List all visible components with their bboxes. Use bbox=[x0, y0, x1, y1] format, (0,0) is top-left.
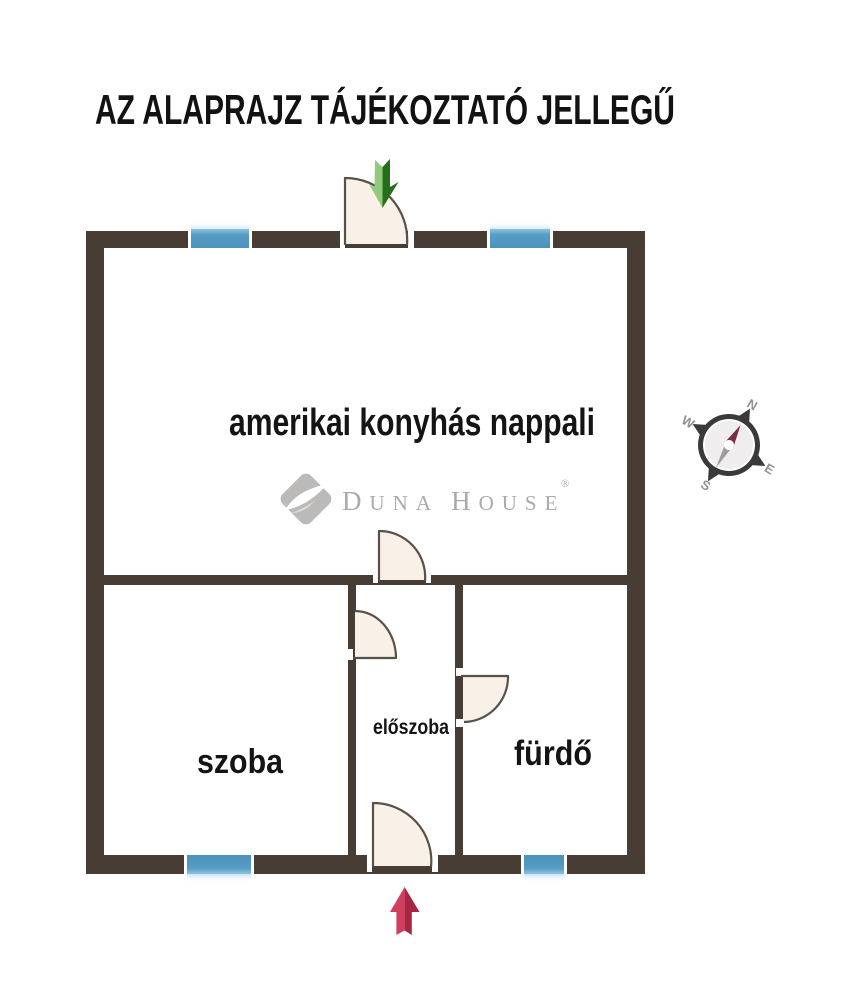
svg-text:®: ® bbox=[561, 478, 569, 490]
svg-text:AZ ALAPRAJZ TÁJÉKOZTATÓ JELLEG: AZ ALAPRAJZ TÁJÉKOZTATÓ JELLEGŰ bbox=[95, 85, 675, 133]
svg-text:amerikai konyhás nappali: amerikai konyhás nappali bbox=[229, 402, 595, 444]
svg-text:előszoba: előszoba bbox=[373, 716, 449, 739]
svg-text:fürdő: fürdő bbox=[514, 734, 592, 773]
svg-text:E: E bbox=[762, 460, 777, 477]
svg-text:szoba: szoba bbox=[197, 743, 284, 781]
svg-text:DUNA HOUSE: DUNA HOUSE bbox=[342, 486, 565, 516]
svg-text:W: W bbox=[679, 412, 698, 431]
svg-text:S: S bbox=[698, 477, 713, 494]
